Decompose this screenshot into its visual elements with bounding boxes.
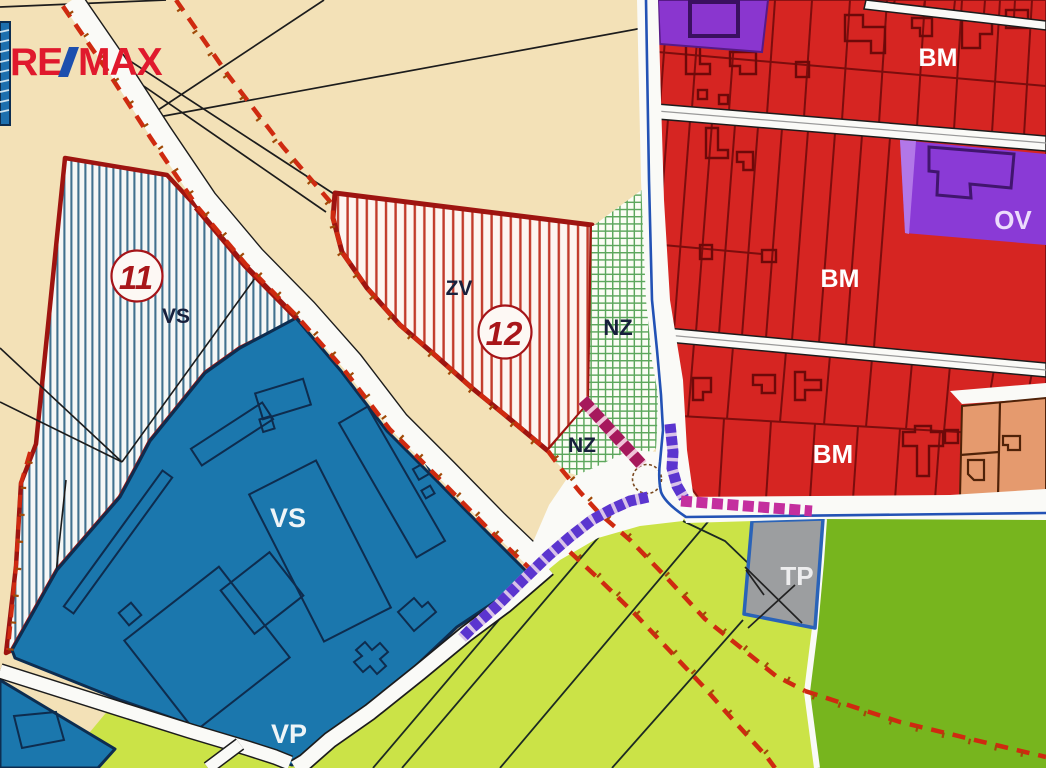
- svg-text:OV: OV: [994, 205, 1032, 235]
- svg-text:VP: VP: [271, 719, 307, 749]
- svg-text:BM: BM: [919, 44, 958, 72]
- svg-text:BM: BM: [821, 265, 860, 293]
- svg-text:BM: BM: [813, 439, 853, 469]
- svg-text:12: 12: [486, 315, 523, 352]
- svg-text:RE: RE: [10, 41, 62, 84]
- svg-text:NZ: NZ: [603, 315, 632, 340]
- svg-text:ZV: ZV: [446, 277, 473, 300]
- svg-text:TP: TP: [780, 561, 813, 591]
- svg-text:VS: VS: [162, 305, 190, 328]
- svg-text:NZ: NZ: [568, 434, 596, 457]
- svg-text:VS: VS: [270, 503, 306, 533]
- svg-text:MAX: MAX: [78, 41, 163, 84]
- svg-text:11: 11: [119, 259, 153, 296]
